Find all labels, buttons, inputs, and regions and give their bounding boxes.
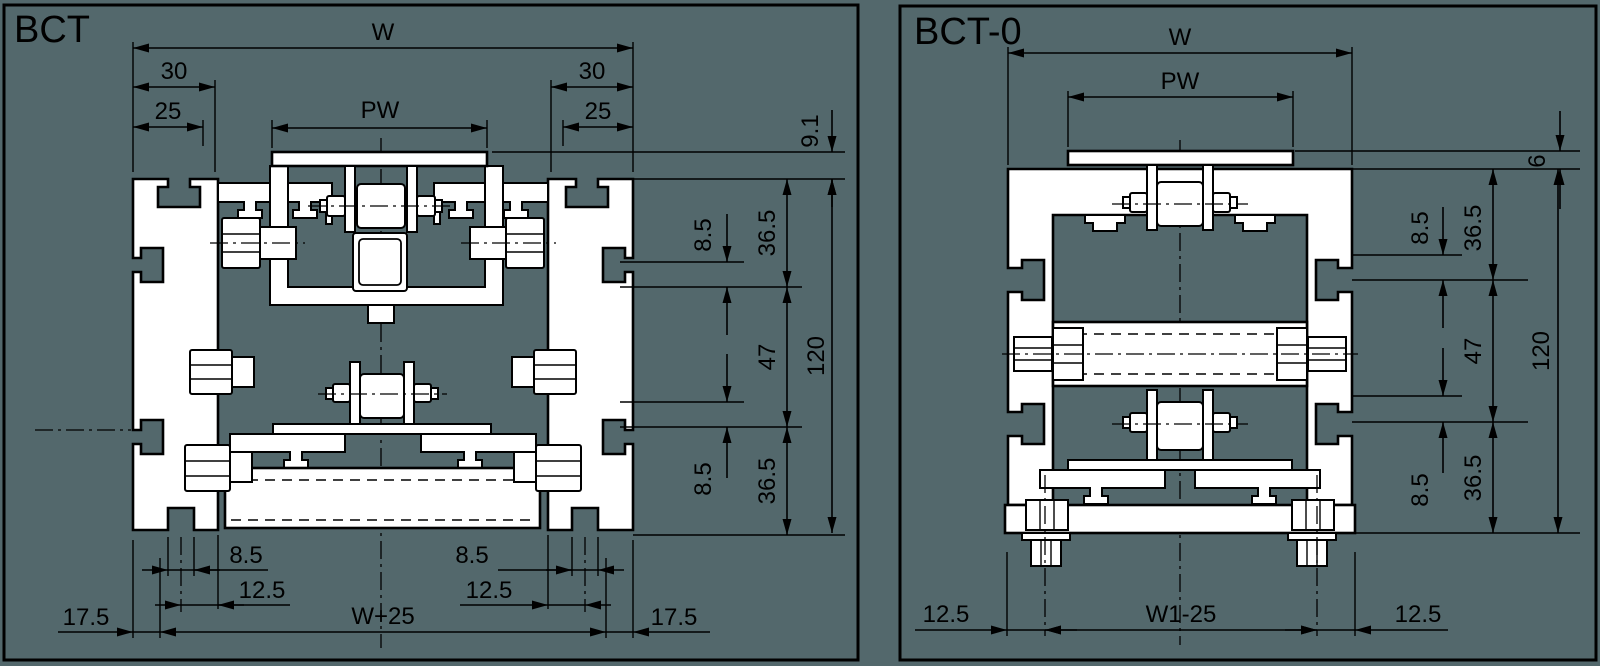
panel-title: BCT-0 bbox=[914, 11, 1022, 53]
panel-bct0: BCT-0 bbox=[900, 6, 1596, 660]
dim-17-5-right: 17.5 bbox=[651, 604, 698, 631]
dim-47: 47 bbox=[754, 344, 781, 371]
dim-9-1: 9.1 bbox=[797, 114, 824, 147]
middle-flange-bars bbox=[230, 434, 536, 468]
middle-plate bbox=[273, 424, 491, 434]
drawing-canvas: BCT bbox=[0, 0, 1600, 666]
dim-36-5-upper: 36.5 bbox=[754, 210, 781, 257]
dim-36-5-upper: 36.5 bbox=[1460, 205, 1487, 252]
dim-12-5-left: 12.5 bbox=[923, 601, 970, 628]
dim-w: W bbox=[1169, 24, 1192, 51]
middle-roller bbox=[318, 362, 447, 424]
dim-12-5-bottom-left: 12.5 bbox=[239, 577, 286, 604]
dim-30-left: 30 bbox=[161, 58, 188, 85]
lower-plate bbox=[1068, 460, 1292, 470]
middle-belt bbox=[1002, 322, 1358, 386]
dim-pw: PW bbox=[1161, 68, 1200, 95]
dim-w-plus-25: W+25 bbox=[351, 603, 414, 630]
center-block bbox=[353, 233, 407, 323]
dim-30-right: 30 bbox=[579, 58, 606, 85]
dim-17-5-left: 17.5 bbox=[63, 604, 110, 631]
dim-12-5-bottom-right: 12.5 bbox=[466, 577, 513, 604]
dim-12-5-right: 12.5 bbox=[1395, 601, 1442, 628]
dim-8-5-lower: 8.5 bbox=[1407, 473, 1434, 506]
dim-25-left: 25 bbox=[155, 98, 182, 125]
dim-36-5-lower: 36.5 bbox=[754, 458, 781, 505]
dim-8-5-bottom-left: 8.5 bbox=[229, 542, 262, 569]
top-plate bbox=[1068, 151, 1293, 165]
dim-36-5-lower: 36.5 bbox=[1460, 455, 1487, 502]
dim-8-5-bottom-right: 8.5 bbox=[455, 542, 488, 569]
dim-w1-minus-25: W1-25 bbox=[1146, 601, 1217, 628]
dim-47: 47 bbox=[1460, 338, 1487, 365]
dim-120: 120 bbox=[803, 336, 830, 376]
dim-120: 120 bbox=[1528, 331, 1555, 371]
panel-bct: BCT bbox=[4, 5, 858, 660]
dim-6: 6 bbox=[1524, 154, 1551, 167]
dim-pw: PW bbox=[361, 97, 400, 124]
belt bbox=[225, 468, 540, 528]
dim-25-right: 25 bbox=[585, 98, 612, 125]
dim-8-5-upper: 8.5 bbox=[690, 218, 717, 251]
dim-w: W bbox=[372, 19, 395, 46]
dim-8-5-upper: 8.5 bbox=[1407, 211, 1434, 244]
technical-drawing: BCT bbox=[0, 0, 1600, 666]
panel-title: BCT bbox=[14, 9, 90, 51]
top-plate bbox=[272, 152, 487, 166]
dim-8-5-lower: 8.5 bbox=[690, 462, 717, 495]
